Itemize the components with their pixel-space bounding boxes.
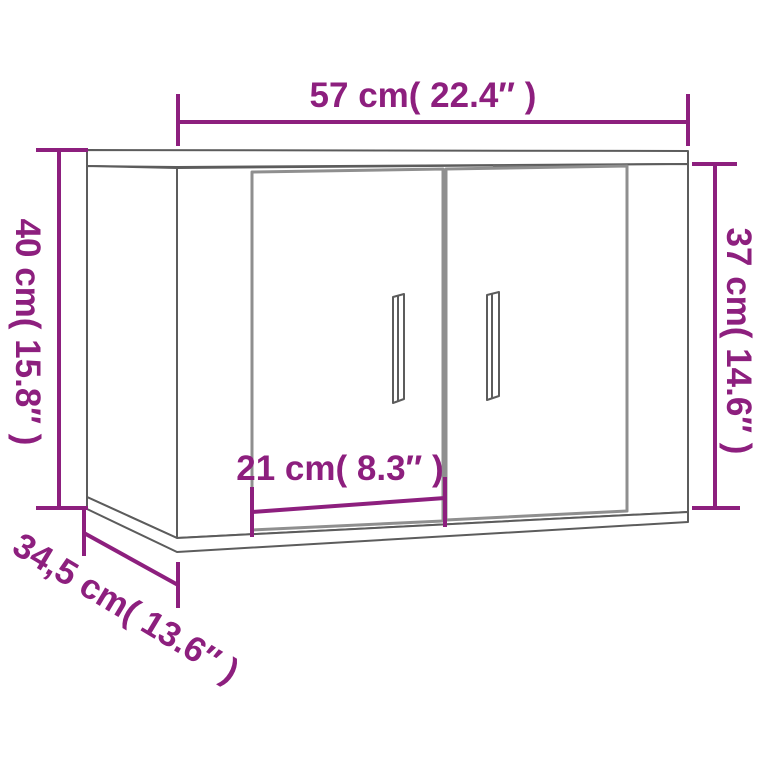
height-right-label: 37 cm( 14.6″ ) bbox=[719, 228, 758, 455]
door-width-label: 21 cm( 8.3″ ) bbox=[236, 449, 443, 488]
width-label: 57 cm( 22.4″ ) bbox=[310, 76, 537, 115]
dimension-diagram: 57 cm( 22.4″ ) 40 cm( 15.8″ ) 37 cm( 14.… bbox=[0, 0, 767, 767]
right-door bbox=[446, 166, 627, 520]
cabinet-left-side-panel bbox=[87, 166, 177, 538]
diagram-canvas: 57 cm( 22.4″ ) 40 cm( 15.8″ ) 37 cm( 14.… bbox=[0, 0, 767, 767]
height-left-label: 40 cm( 15.8″ ) bbox=[8, 219, 47, 446]
